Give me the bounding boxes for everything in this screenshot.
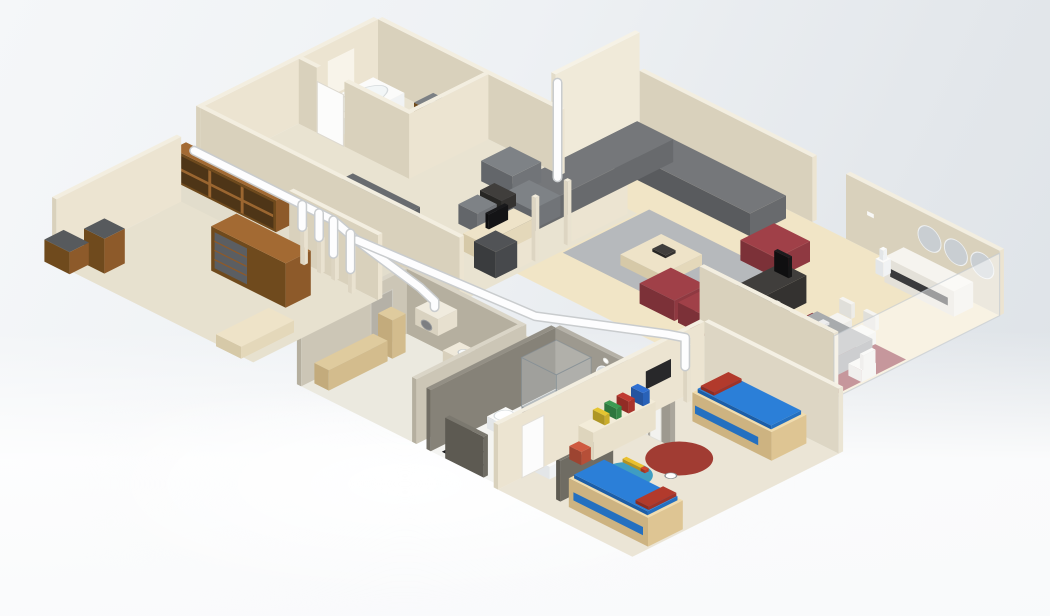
frame-post-6-left <box>532 196 536 262</box>
kids-ne-wall-right <box>839 387 843 454</box>
ensuite-wall-left-left <box>299 59 317 133</box>
frame-post-1-right <box>304 227 308 265</box>
frame-post-6-right <box>535 196 539 262</box>
dark-stub-wall-2-right <box>484 435 488 478</box>
leftroom-ne-wall-right <box>378 233 382 300</box>
frame-post-5-right <box>568 180 572 246</box>
bathroom2-nw-wall-left <box>427 388 431 451</box>
dark-stub-wall-1-left <box>556 459 560 502</box>
ensuite-wall-right-right <box>409 112 413 179</box>
living-ne-wall-left-right <box>812 155 816 222</box>
frame-post-2-left <box>317 238 321 274</box>
kids-nw-wall-left <box>494 423 498 490</box>
tv-panel-right <box>789 256 792 278</box>
frame-post-2-right <box>321 238 325 274</box>
frame-post-5-left <box>564 180 568 246</box>
kids-door <box>522 415 544 477</box>
wood-shelf-tall-right <box>392 314 405 359</box>
kitchen-se-wall-left <box>412 377 416 444</box>
monitor-left <box>486 213 489 230</box>
bookshelf-divider-1 <box>208 170 211 198</box>
floor-vase-neck-right <box>883 249 887 261</box>
floor-vase-neck-left <box>879 249 883 261</box>
isometric-floorplan-svg <box>0 0 1050 616</box>
floorplan-3d-render: 3D isometric apartment floor plan render <box>0 0 1050 616</box>
bookshelf-divider-2 <box>241 186 244 214</box>
dining-chair-1-back-right <box>851 303 855 319</box>
frame-post-1-left <box>300 227 304 265</box>
living-ne-wall-right-right <box>1000 249 1004 316</box>
